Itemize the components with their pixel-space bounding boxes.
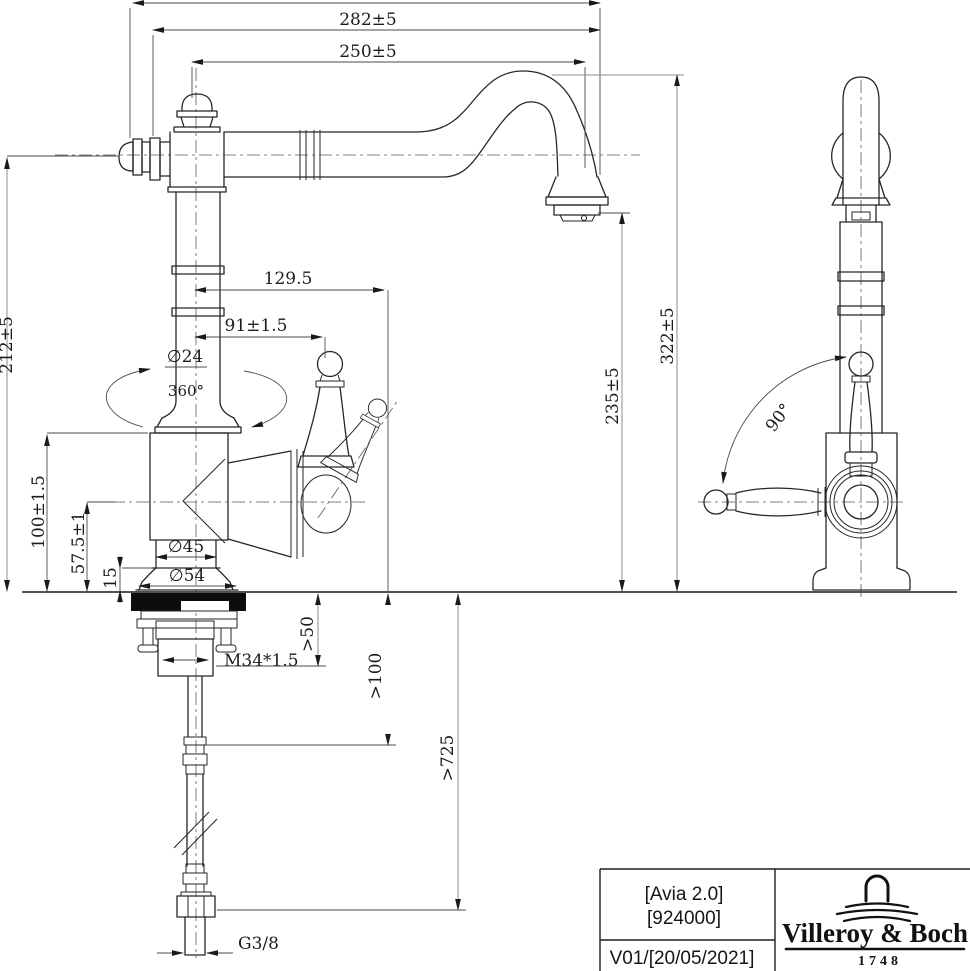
supply-hose xyxy=(174,676,217,955)
revision-date: V01/[20/05/2021] xyxy=(610,948,755,969)
product-name: [Avia 2.0] xyxy=(645,884,724,905)
dim-d54-label: ∅54 xyxy=(169,566,205,586)
title-block: [Avia 2.0] [924000] V01/[20/05/2021] Vil… xyxy=(600,869,970,971)
brand-name: Villeroy & Boch xyxy=(782,918,968,948)
dim-g38-label: G3/8 xyxy=(238,934,279,954)
finial-cap xyxy=(174,94,220,132)
swivel-arc-right xyxy=(244,371,287,427)
dim-m34-label: M34*1.5 xyxy=(224,651,299,671)
dim-90deg-label: 90° xyxy=(762,400,796,436)
dim-15-label: 15 xyxy=(101,567,121,589)
brand-founded: 1748 xyxy=(858,954,902,969)
body-side xyxy=(826,433,897,568)
spout-outlet xyxy=(546,177,608,221)
front-view xyxy=(119,71,608,955)
break-symbol xyxy=(174,812,217,855)
technical-drawing-page: 90° 282±5 250±5 129.5 91±1.5 ∅24 360° 21… xyxy=(0,0,970,971)
fountain-icon xyxy=(866,876,888,901)
dim-322-label: 322±5 xyxy=(658,307,678,365)
left-nub xyxy=(119,138,170,180)
base-flare-side xyxy=(813,568,910,590)
dim-d45-label: ∅45 xyxy=(168,537,204,557)
dimensions: 282±5 250±5 129.5 91±1.5 ∅24 360° 212±5 … xyxy=(0,3,684,954)
dim-100gt-label: >100 xyxy=(366,653,386,700)
dim-360-label: 360° xyxy=(168,382,204,400)
dim-725-label: >725 xyxy=(438,735,458,782)
dim-250-label: 250±5 xyxy=(339,42,397,62)
dim-212-label: 212±5 xyxy=(0,316,17,374)
spout xyxy=(224,71,597,180)
side-view: 90° xyxy=(704,77,910,590)
swivel-arc-left xyxy=(106,369,150,427)
handle-tilted xyxy=(321,389,398,483)
dim-100-label: 100±1.5 xyxy=(29,475,49,549)
dim-575-label: 57.5±1 xyxy=(69,512,89,575)
brand-logo: Villeroy & Boch 1748 xyxy=(782,876,968,969)
cross-body xyxy=(168,132,226,192)
dim-282-label: 282±5 xyxy=(339,10,397,30)
dim-d24-label: ∅24 xyxy=(167,347,203,367)
faucet-technical-drawing: 90° 282±5 250±5 129.5 91±1.5 ∅24 360° 21… xyxy=(0,0,970,971)
dim-235-label: 235±5 xyxy=(603,367,623,425)
dim-1295-label: 129.5 xyxy=(264,269,313,289)
article-number: [924000] xyxy=(647,908,721,929)
handle-upright xyxy=(298,352,354,468)
dim-91-label: 91±1.5 xyxy=(225,316,288,336)
dim-50-label: >50 xyxy=(298,616,318,652)
centerlines xyxy=(55,68,906,958)
